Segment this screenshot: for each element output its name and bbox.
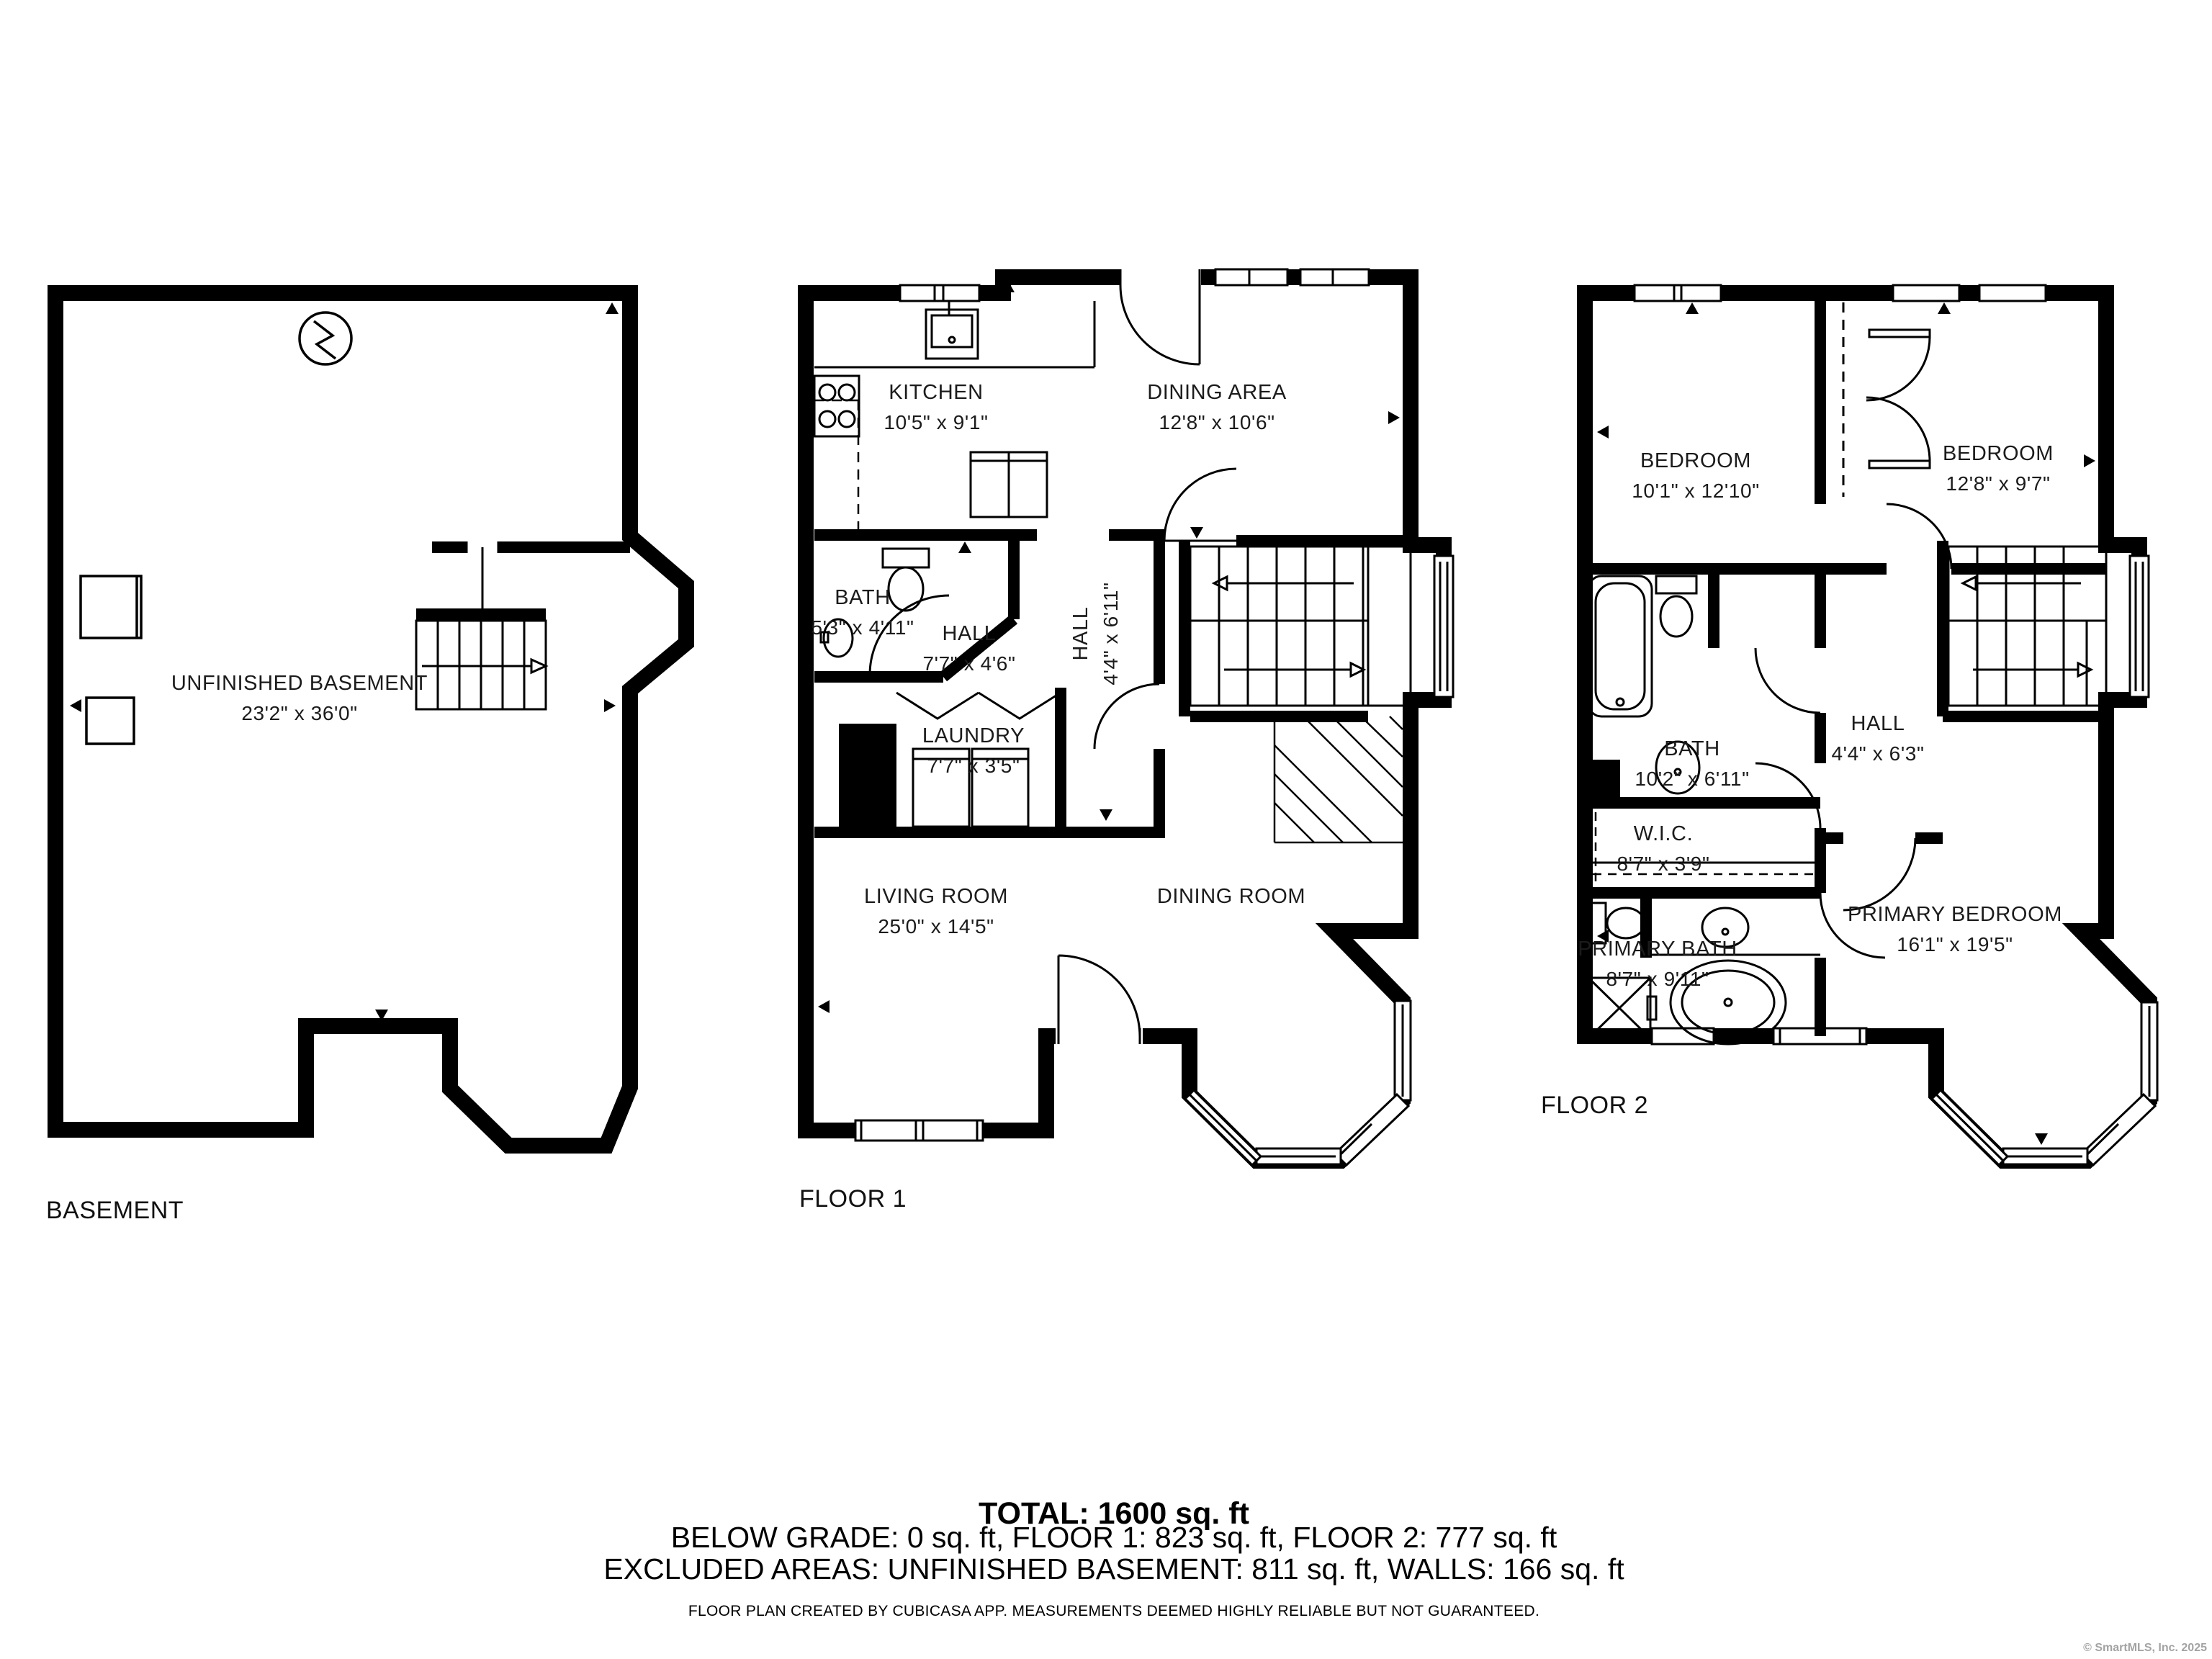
room-dims: 7'7" x 3'5" bbox=[922, 751, 1025, 781]
room-dims: 10'2" x 6'11" bbox=[1635, 764, 1749, 794]
disclaimer-text: FLOOR PLAN CREATED BY CUBICASA APP. MEAS… bbox=[688, 1603, 1539, 1620]
room-label-hall1-vertical: HALL 4'4" x 6'11" bbox=[1066, 582, 1126, 685]
room-name: UNFINISHED BASEMENT bbox=[171, 668, 428, 698]
room-dims: 5'3" x 4'11" bbox=[811, 613, 914, 643]
copyright-text: © SmartMLS, Inc. 2025 bbox=[2083, 1642, 2207, 1655]
room-dims: 12'8" x 10'6" bbox=[1147, 408, 1287, 438]
room-name: BEDROOM bbox=[1943, 439, 2054, 469]
room-label-unfinished-basement: UNFINISHED BASEMENT 23'2" x 36'0" bbox=[171, 668, 428, 729]
room-label-bath2: BATH 10'2" x 6'11" bbox=[1635, 734, 1749, 794]
room-label-bath1: BATH 5'3" x 4'11" bbox=[811, 583, 914, 643]
room-dims: 4'4" x 6'11" bbox=[1096, 582, 1126, 685]
room-name: BATH bbox=[811, 583, 914, 613]
room-name: PRIMARY BATH bbox=[1578, 934, 1737, 964]
room-dims: 25'0" x 14'5" bbox=[864, 912, 1008, 942]
floor-tag-basement: BASEMENT bbox=[46, 1197, 184, 1225]
floor1-wall-block bbox=[839, 724, 896, 838]
room-name: HALL bbox=[922, 619, 1015, 649]
floor-tag-floor2: FLOOR 2 bbox=[1541, 1092, 1648, 1120]
floor2-wall-block bbox=[1578, 760, 1620, 797]
room-label-hall2: HALL 4'4" x 6'3" bbox=[1831, 709, 1924, 769]
excluded-areas-text: EXCLUDED AREAS: UNFINISHED BASEMENT: 811… bbox=[603, 1552, 1624, 1586]
room-label-primary-bath: PRIMARY BATH 8'7" x 9'11" bbox=[1578, 934, 1737, 994]
floor-areas-text: BELOW GRADE: 0 sq. ft, FLOOR 1: 823 sq. … bbox=[671, 1521, 1557, 1555]
room-name: LAUNDRY bbox=[922, 721, 1025, 751]
room-label-laundry: LAUNDRY 7'7" x 3'5" bbox=[922, 721, 1025, 781]
room-label-wic: W.I.C. 8'7" x 3'9" bbox=[1617, 819, 1709, 879]
floorplan-page: UNFINISHED BASEMENT 23'2" x 36'0" KITCHE… bbox=[0, 0, 2212, 1659]
room-label-dining-room: DINING ROOM bbox=[1157, 881, 1305, 912]
room-name: DINING AREA bbox=[1147, 377, 1287, 408]
room-label-primary-bedroom: PRIMARY BEDROOM 16'1" x 19'5" bbox=[1848, 899, 2062, 960]
room-name: BEDROOM bbox=[1632, 446, 1760, 476]
room-dims: 4'4" x 6'3" bbox=[1831, 739, 1924, 769]
room-label-hall1: HALL 7'7" x 4'6" bbox=[922, 619, 1015, 679]
room-label-dining-area: DINING AREA 12'8" x 10'6" bbox=[1147, 377, 1287, 438]
room-dims: 23'2" x 36'0" bbox=[171, 698, 428, 729]
room-dims: 12'8" x 9'7" bbox=[1943, 469, 2054, 499]
room-dims: 7'7" x 4'6" bbox=[922, 649, 1015, 679]
room-dims: 8'7" x 9'11" bbox=[1578, 964, 1737, 994]
floorplan-canvas bbox=[0, 0, 2212, 1659]
room-name: BATH bbox=[1635, 734, 1749, 764]
room-name: W.I.C. bbox=[1617, 819, 1709, 849]
room-name: KITCHEN bbox=[884, 377, 988, 408]
room-label-bedroom2: BEDROOM 12'8" x 9'7" bbox=[1943, 439, 2054, 499]
room-dims: 10'1" x 12'10" bbox=[1632, 476, 1760, 506]
room-label-bedroom1: BEDROOM 10'1" x 12'10" bbox=[1632, 446, 1760, 506]
room-dims: 8'7" x 3'9" bbox=[1617, 849, 1709, 879]
room-dims: 16'1" x 19'5" bbox=[1848, 930, 2062, 960]
room-dims: 10'5" x 9'1" bbox=[884, 408, 988, 438]
room-name: DINING ROOM bbox=[1157, 881, 1305, 912]
room-label-kitchen: KITCHEN 10'5" x 9'1" bbox=[884, 377, 988, 438]
floor1-window bbox=[855, 1120, 983, 1141]
room-name: HALL bbox=[1831, 709, 1924, 739]
room-name: LIVING ROOM bbox=[864, 881, 1008, 912]
room-name: HALL bbox=[1066, 582, 1096, 685]
room-name: PRIMARY BEDROOM bbox=[1848, 899, 2062, 930]
floor-tag-floor1: FLOOR 1 bbox=[799, 1185, 907, 1213]
room-label-living-room: LIVING ROOM 25'0" x 14'5" bbox=[864, 881, 1008, 942]
